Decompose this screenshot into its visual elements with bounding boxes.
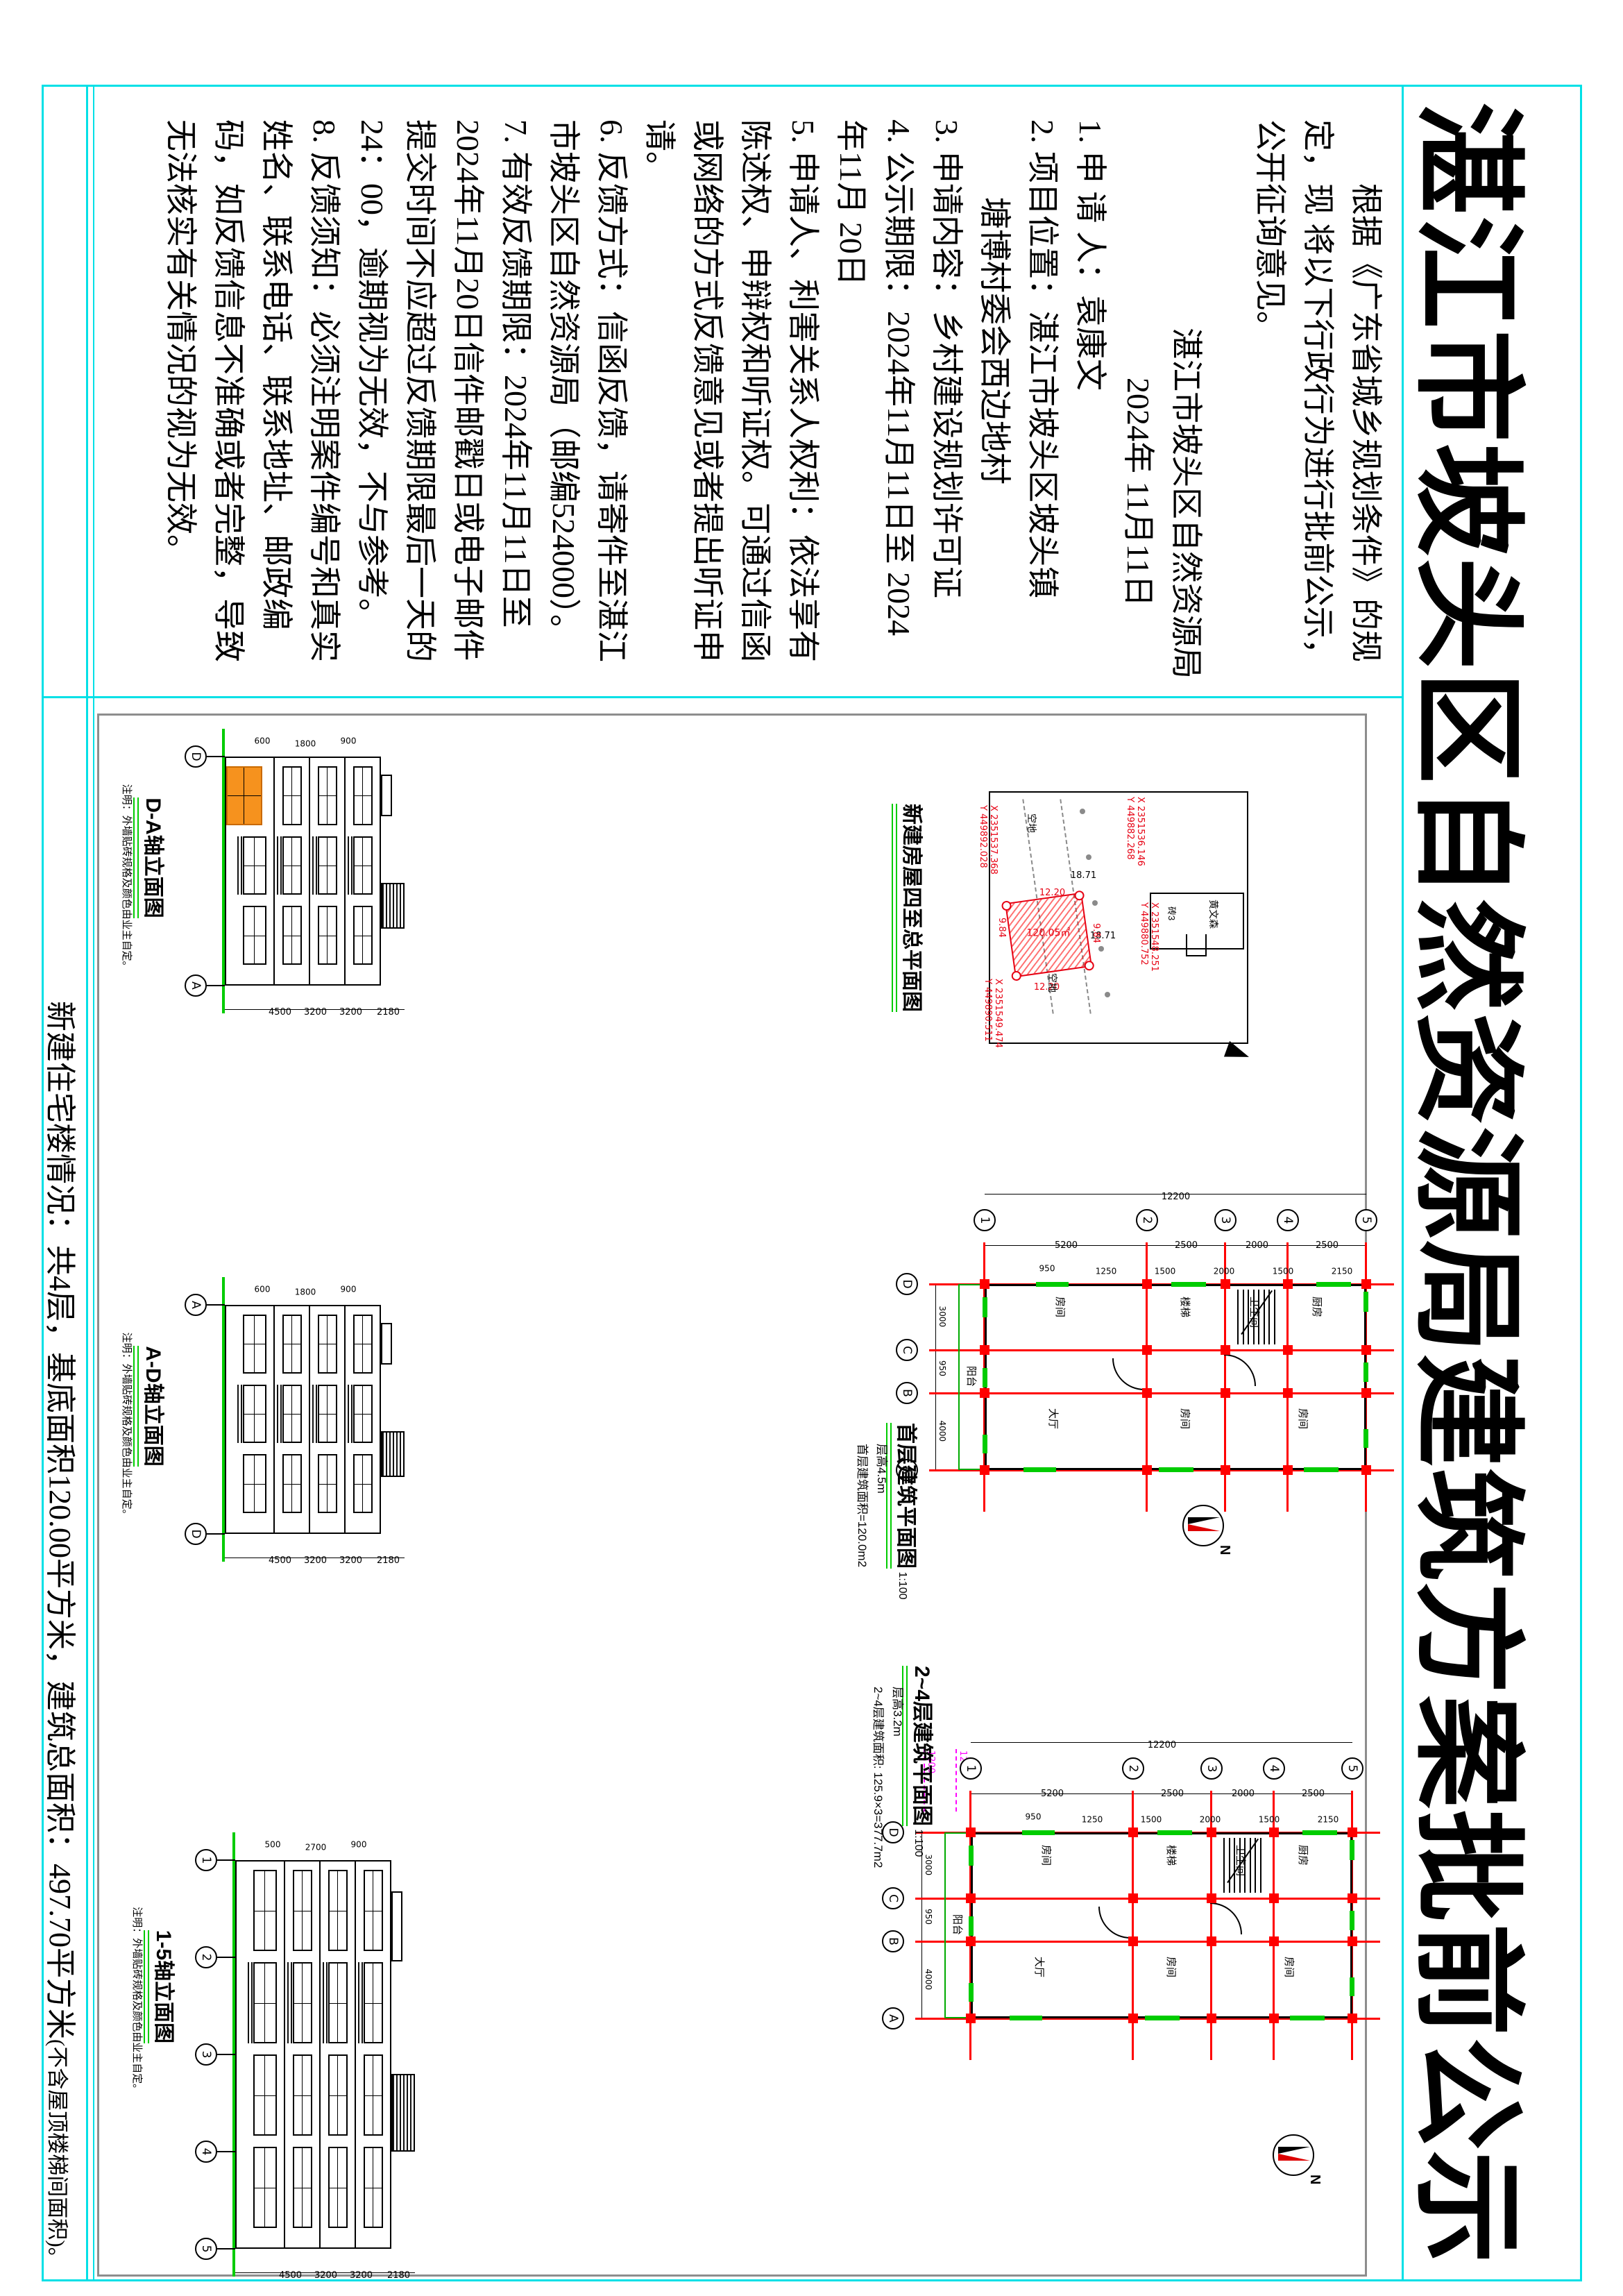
elevation-height-dim: 3200 [304, 1007, 327, 1018]
neighbor-tag: 砖3 [1166, 906, 1179, 920]
elevation-window [293, 1962, 312, 2043]
letter-axis-bubble: C [896, 1339, 918, 1361]
floor-plan-storey-height: 层高3.2m [890, 1687, 908, 1737]
elevation-window [328, 1870, 348, 1951]
total-dim-number: 12200 [1148, 1740, 1176, 1750]
axis-stem [217, 2054, 235, 2055]
railing-band [277, 836, 282, 895]
room-label: 卫生间 [1234, 1845, 1248, 1876]
elevation-window [318, 906, 337, 965]
elevation-axis-bubble: 3 [195, 2043, 217, 2066]
elevation-window [243, 1385, 266, 1444]
notice-line: 7. 有效反馈期限：2024年11月11日至 [492, 119, 540, 702]
survey-dot [1092, 900, 1098, 906]
elevation-note: 注明：外墙贴砖规格及颜色由业主自定。 [120, 1333, 135, 1520]
column-marker [1142, 1279, 1152, 1289]
north-label: N [1307, 2175, 1323, 2184]
sub-dim-number: 1250 [1082, 1814, 1103, 1824]
survey-dot [1105, 992, 1110, 997]
sub-dim-number: 2000 [1214, 1266, 1235, 1276]
railing-band [287, 1962, 293, 2043]
compass-needle-red [1278, 2154, 1310, 2161]
column-marker [966, 2014, 976, 2023]
elevation-window [282, 766, 302, 825]
north-compass-icon [1273, 2134, 1314, 2176]
elevation-axis-bubble: A [185, 974, 207, 997]
wall-green-segment [1363, 1429, 1368, 1448]
balcony-label: 阳台 [965, 1366, 979, 1387]
letter-dim-number: 3000 [924, 1855, 933, 1876]
wall-green-segment [1350, 1977, 1354, 1996]
wall-green-segment [1363, 1292, 1368, 1312]
dim-line [935, 1284, 936, 1470]
railing-band [248, 1962, 253, 2043]
offset-dim-line [955, 1749, 957, 1812]
column-marker [1348, 1893, 1357, 1903]
floor-plan-scale: 1:100 [912, 1826, 924, 1857]
column-marker [1269, 1936, 1279, 1946]
elevation-window [318, 1454, 337, 1513]
railing-band [237, 836, 243, 895]
railing-band [358, 1962, 364, 2043]
coord-y: Y 449892.028 [978, 805, 988, 875]
sub-dim-number: 950 [1039, 1263, 1055, 1273]
north-label: N [1216, 1545, 1232, 1555]
column-marker [1221, 1345, 1230, 1355]
railing-band [312, 1385, 318, 1444]
caption-text-small: (不含屋顶楼梯间面积)。 [45, 2039, 69, 2269]
total-dim-number: 12200 [1162, 1192, 1190, 1202]
room-label: 楼梯 [1164, 1845, 1179, 1866]
room-label: 房间 [1164, 1957, 1179, 1977]
axis-stem [207, 1304, 225, 1306]
plot-dim-bottom: 9.84 [996, 918, 1007, 938]
caption-text: 新建住宅楼情况：共4层，基底面积120.00平方米，建筑总面积：497.70平方… [43, 1001, 77, 2039]
elevation-window [328, 1962, 348, 2043]
elevation-note: 注明：外墙贴砖规格及颜色由业主自定。 [120, 784, 135, 972]
sub-dim-number: 2000 [1200, 1814, 1221, 1824]
vacant-label: 空地 [1025, 813, 1039, 833]
column-marker [1361, 1345, 1371, 1355]
column-marker [1269, 1827, 1279, 1837]
railing-band [323, 1962, 328, 2043]
axis-dim-number: 2500 [1161, 1789, 1184, 1799]
plot-area-label: 120.05㎡ [1027, 926, 1071, 940]
letter-dim-number: 950 [924, 1909, 933, 1925]
elevation-window [282, 1315, 302, 1374]
letter-axis-bubble: C [882, 1887, 904, 1909]
wall-green-segment [1291, 2016, 1325, 2020]
numeric-axis-bubble: 4 [1277, 1209, 1299, 1231]
elevation-window [353, 1454, 373, 1513]
column-marker [1348, 1936, 1357, 1946]
elevation-height-dim: 2180 [377, 1555, 400, 1566]
page-title: 湛江市坡头区自然资源局建筑方案批前公示 [1410, 90, 1559, 2277]
roof-parapet-block [381, 775, 392, 816]
elevation-axis-bubble: 4 [195, 2141, 217, 2163]
elevation-sub-dim: 600 [255, 736, 271, 745]
elevation-height-dim: 3200 [339, 1555, 362, 1566]
elevation-axis-bubble: 2 [195, 1946, 217, 1968]
notice-line: 陈述权、申辩权和听证权。可通过信函 [731, 119, 779, 702]
elevation-window [328, 2054, 348, 2136]
room-label: 房间 [1039, 1845, 1054, 1866]
sub-dim-number: 950 [1026, 1812, 1042, 1821]
wall-green-segment [1036, 1282, 1069, 1287]
column-marker [1221, 1388, 1230, 1398]
axis-stem [217, 1957, 235, 1958]
compass-needle-black [1278, 2147, 1310, 2154]
letter-axis-bubble: D [896, 1273, 918, 1295]
coord-x: X 2351548.251 [1149, 902, 1159, 972]
axis-dim-number: 2500 [1316, 1240, 1339, 1251]
railing-band [348, 1385, 353, 1444]
sub-dim-number: 2150 [1332, 1266, 1353, 1276]
elevation-window [318, 1315, 337, 1374]
elevation-axis-bubble: 5 [195, 2238, 217, 2260]
compass-needle-black [1188, 1517, 1220, 1524]
room-label: 厨房 [1296, 1845, 1311, 1866]
column-marker [1142, 1345, 1152, 1355]
elevation-window [253, 2147, 277, 2228]
room-label: 大厅 [1046, 1408, 1061, 1429]
elevation-window [353, 906, 373, 965]
elevation-window [364, 2147, 383, 2228]
elevation-height-dim: 4500 [269, 1007, 291, 1018]
room-label: 房间 [1053, 1297, 1068, 1317]
plot-corner-coords: X 2351548.251Y 449880.752 [1139, 902, 1159, 972]
wall-green-segment [1022, 1830, 1055, 1835]
column-marker [1142, 1465, 1152, 1475]
axis-dim-number: 2000 [1232, 1789, 1255, 1799]
elevation-title: 1-5轴立面图 [144, 1930, 181, 2043]
wall-green-segment [1305, 1467, 1339, 1472]
column-marker [1207, 1827, 1216, 1837]
roof-parapet-block [391, 1891, 402, 1961]
site-plan-title: 新建房屋四至总平面图 [892, 804, 929, 1012]
neighbor-building-notch [1186, 934, 1207, 956]
roof-stair-bulkhead [381, 1431, 405, 1477]
notice-line: 4. 公示期限：2024年11月11日至 2024 [875, 119, 923, 702]
floor-plan-title-text: 2~4层建筑平面图 [902, 1666, 940, 1826]
wall-green-segment [983, 1368, 987, 1388]
wall-green-segment [969, 1983, 974, 2002]
elevation-axis-bubble: A [185, 1294, 207, 1316]
column-marker [1269, 1893, 1279, 1903]
plot-corner-coords: X 2351549.474Y 449890.511 [983, 979, 1003, 1048]
notice-line: 或网络的方式反馈意见或者提出听证申 [683, 119, 731, 702]
elevation-window [293, 2147, 312, 2228]
notice-line: 公开征询意见。 [1246, 119, 1294, 702]
column-marker [1128, 1936, 1138, 1946]
elevation-window [243, 836, 266, 895]
plot-corner-coords: X 2351536.146Y 449882.268 [1125, 797, 1146, 866]
column-marker [1283, 1345, 1293, 1355]
notice-line: 24：00，逾期视为无效，不与参考。 [348, 119, 396, 702]
elevation-window [364, 2054, 383, 2136]
notice-line: 2024年11月20日信件邮戳日或电子邮件 [444, 119, 492, 702]
column-marker [1283, 1279, 1293, 1289]
roof-parapet-block [381, 1323, 392, 1364]
elevation-sub-dim: 900 [341, 736, 357, 745]
column-marker [1361, 1279, 1371, 1289]
room-label: 房间 [1178, 1408, 1193, 1429]
elevation-height-dim: 4500 [279, 2270, 302, 2281]
sub-dim-number: 1250 [1096, 1266, 1117, 1276]
elevation-axis-bubble: 1 [195, 1849, 217, 1871]
axis-stem [207, 756, 225, 757]
notice-line: 2. 项目位置：湛江市坡头区坡头镇 [1019, 119, 1067, 702]
elevation-axis-bubble: D [185, 745, 207, 768]
wall-green-segment [983, 1297, 987, 1317]
elevation-window [353, 1385, 373, 1444]
column-marker [980, 1279, 989, 1289]
elevation-title-text: D-A轴立面图 [133, 797, 171, 918]
column-marker [1128, 2014, 1138, 2023]
wall-green-segment [1303, 1830, 1338, 1835]
column-marker [1142, 1388, 1152, 1398]
elevation-window [282, 906, 302, 965]
roof-stair-bulkhead [391, 2074, 415, 2152]
notice-line: 2024年 11月11日 [1114, 119, 1162, 702]
elevation-sub-dim: 600 [255, 1284, 271, 1294]
landscape-sheet: 湛江市坡头区自然资源局建筑方案批前公示 根据《广东省城乡规划条件》的规定，现 将… [0, 0, 1623, 2296]
entrance-door-orange [226, 766, 262, 825]
column-marker [1361, 1465, 1371, 1475]
axis-stem [217, 2248, 235, 2249]
notice-block: 根据《广东省城乡规划条件》的规定，现 将以下行政行为进行批前公示，公开征询意见。… [157, 119, 1390, 702]
compass-needle-red [1188, 1524, 1220, 1531]
column-marker [1269, 2014, 1279, 2023]
elevation-sub-dim: 900 [351, 1839, 367, 1849]
elevation-sub-dim: 2700 [305, 1842, 327, 1852]
plan-outer-wall [971, 1832, 1352, 2018]
letter-axis-bubble: B [882, 1930, 904, 1952]
elevation-window [282, 836, 302, 895]
floor-plan-title-text: 首层建筑平面图 [886, 1423, 924, 1569]
notice-line: 姓名、联系电话、联系地址、邮政编 [253, 119, 300, 702]
elevation-axis-bubble: D [185, 1523, 207, 1545]
axis-dim-number: 2500 [1175, 1240, 1198, 1251]
letter-dim-number: 4000 [937, 1421, 947, 1442]
wall-green-segment [1350, 1840, 1354, 1860]
neighbor-name: 黄文森 [1207, 900, 1221, 929]
survey-dot [1080, 809, 1085, 814]
elevation-window [253, 1962, 277, 2043]
axis-dim-number: 2000 [1246, 1240, 1268, 1251]
elevation-window [243, 1315, 266, 1374]
survey-dot [1098, 946, 1104, 952]
plot-dim-left: 12.20 [1039, 888, 1065, 898]
elevation-window [243, 1454, 266, 1513]
column-marker [1207, 2014, 1216, 2023]
column-marker [980, 1345, 989, 1355]
elevation-height-dim: 2180 [377, 1007, 400, 1018]
notice-line: 定，现 将以下行政行为进行批前公示， [1294, 119, 1342, 702]
elevation-height-dim: 3200 [314, 2270, 337, 2281]
column-marker [1221, 1279, 1230, 1289]
column-marker [1128, 1893, 1138, 1903]
wall-green-segment [1146, 2016, 1180, 2020]
notice-line: 6. 反馈方式：信函反馈，请寄件至湛江 [588, 119, 636, 702]
axis-dim-number: 5200 [1041, 1789, 1064, 1799]
room-label: 房间 [1282, 1957, 1297, 1977]
balcony-label: 阳台 [951, 1914, 965, 1935]
numeric-axis-bubble: 1 [960, 1757, 982, 1780]
wall-green-segment [1158, 1830, 1193, 1835]
railing-band [277, 1385, 282, 1444]
elevation-window [318, 766, 337, 825]
notice-line: 提交时间不应超过反馈期限最后一天的 [396, 119, 444, 702]
elevation-window [353, 1315, 373, 1374]
elevation-title: A-D轴立面图 [133, 1346, 171, 1466]
room-label: 房间 [1296, 1408, 1311, 1429]
wall-green-segment [1023, 1467, 1056, 1472]
elevation-window [253, 1870, 277, 1951]
dim-line [921, 1832, 922, 2018]
road-dim: 18.71 [1071, 870, 1096, 881]
elevation-window [293, 2054, 312, 2136]
wall-green-segment [1350, 1911, 1354, 1931]
wall-green-segment [1363, 1362, 1368, 1383]
notice-line: 年11月 20日 [827, 119, 875, 702]
notice-line: 塘博村委会西边地村 [971, 119, 1019, 702]
elevation-window [353, 766, 373, 825]
caption-divider-line-a [93, 85, 94, 2281]
caption-strip: 新建住宅楼情况：共4层，基底面积120.00平方米，建筑总面积：497.70平方… [41, 1001, 85, 2269]
column-marker [1207, 1893, 1216, 1903]
sub-dim-number: 1500 [1155, 1266, 1176, 1276]
column-marker [1207, 1936, 1216, 1946]
survey-dot [1086, 854, 1091, 860]
coord-x: X 2351537.368 [988, 805, 999, 875]
room-label: 卫生间 [1248, 1297, 1262, 1328]
room-label: 厨房 [1310, 1297, 1325, 1317]
floor-plan-title: 首层建筑平面图 1:100 [886, 1423, 924, 1599]
notice-line: 根据《广东省城乡规划条件》的规 [1342, 119, 1390, 702]
column-marker [1221, 1465, 1230, 1475]
floor-plan-storey-height: 层高4.5m [874, 1444, 892, 1494]
column-marker [1128, 1827, 1138, 1837]
elevation-height-dim: 3200 [304, 1555, 327, 1566]
elevation-title: D-A轴立面图 [133, 797, 171, 918]
wall-green-segment [1159, 1467, 1194, 1472]
axis-dim-number: 5200 [1055, 1240, 1078, 1251]
elevation-sub-dim: 900 [341, 1284, 357, 1294]
numeric-axis-bubble: 2 [1122, 1757, 1144, 1780]
sub-dim-number: 1500 [1141, 1814, 1162, 1824]
roof-stair-bulkhead [381, 883, 405, 929]
numeric-axis-bubble: 4 [1263, 1757, 1285, 1780]
column-marker [966, 1827, 976, 1837]
wall-green-segment [1317, 1282, 1352, 1287]
floor-plan-area: 首层建筑面积=120.0m2 [855, 1444, 872, 1567]
column-marker [1348, 1827, 1357, 1837]
coord-y: Y 449890.511 [983, 979, 993, 1048]
elevation-window [353, 836, 373, 895]
column-marker [980, 1465, 989, 1475]
wall-green-segment [1010, 2016, 1042, 2020]
elevation-window [318, 1385, 337, 1444]
numeric-axis-bubble: 5 [1355, 1209, 1377, 1231]
notice-line: 1. 申 请 人：袁康文 [1067, 119, 1114, 702]
elevation-sub-dim: 1800 [295, 1287, 316, 1297]
sub-dim-number: 1500 [1273, 1266, 1294, 1276]
numeric-axis-bubble: 1 [974, 1209, 996, 1231]
room-label: 大厅 [1033, 1957, 1047, 1977]
elevation-window [243, 906, 266, 965]
coord-x: X 2351549.474 [993, 979, 1003, 1048]
notice-line: 8. 反馈须知：必须注明案件编号和真实 [300, 119, 348, 702]
elevation-window [328, 2147, 348, 2228]
plot-corner-coords: X 2351537.368Y 449892.028 [978, 805, 999, 875]
railing-band [312, 836, 318, 895]
wall-green-segment [969, 1916, 974, 1936]
sub-dim-number: 2150 [1318, 1814, 1339, 1824]
column-marker [1348, 2014, 1357, 2023]
caption-divider-line-b [86, 85, 88, 2281]
scanned-notice-page: 湛江市坡头区自然资源局建筑方案批前公示 根据《广东省城乡规划条件》的规定，现 将… [0, 0, 1623, 2296]
wall-green-segment [1172, 1282, 1207, 1287]
axis-stem [217, 2151, 235, 2152]
wall-green-segment [983, 1435, 987, 1453]
axis-stem [217, 1859, 235, 1861]
elevation-height-dim: 4500 [269, 1555, 291, 1566]
elevation-window [364, 1962, 383, 2043]
floor-plan-title: 2~4层建筑平面图 1:100 [902, 1666, 940, 1857]
coord-x: X 2351536.146 [1135, 797, 1146, 866]
letter-dim-number: 950 [937, 1360, 947, 1376]
elevation-sub-dim: 1800 [295, 738, 316, 748]
notice-line: 请。 [636, 119, 683, 702]
letter-dim-number: 4000 [924, 1969, 933, 1991]
elevation-title-text: A-D轴立面图 [133, 1346, 171, 1466]
notice-line: 湛江市坡头区自然资源局 [1162, 119, 1210, 702]
numeric-axis-bubble: 3 [1214, 1209, 1237, 1231]
letter-axis-bubble: A [882, 2007, 904, 2029]
column-marker [1283, 1388, 1293, 1398]
column-marker [966, 1936, 976, 1946]
numeric-axis-bubble: 5 [1341, 1757, 1363, 1780]
elevation-note: 注明：外墙贴砖规格及颜色由业主自定。 [130, 1907, 145, 2094]
elevation-window [364, 1870, 383, 1951]
column-marker [980, 1388, 989, 1398]
letter-axis-bubble: B [896, 1382, 918, 1404]
axis-stem [207, 985, 225, 986]
elevation-window [282, 1454, 302, 1513]
notice-line: 市坡头区自然资源局（邮编524000）。 [540, 119, 588, 702]
coord-y: Y 449880.752 [1139, 902, 1149, 972]
vacant-label: 空地 [1046, 973, 1060, 993]
elevation-sub-dim: 500 [265, 1839, 281, 1849]
axis-stem [207, 1533, 225, 1535]
notice-line: 5. 申请人、利害关系人权利：依法享有 [779, 119, 827, 702]
room-label: 楼梯 [1178, 1297, 1193, 1317]
north-compass-icon [1182, 1505, 1224, 1546]
elevation-window [318, 836, 337, 895]
notice-line: 码，如反馈信息不准确或者完整，导致 [205, 119, 253, 702]
axis-dim-number: 2500 [1302, 1789, 1325, 1799]
letter-dim-number: 3000 [937, 1306, 947, 1328]
column-marker [1283, 1465, 1293, 1475]
floor-plan-area: 2~4层建筑面积: 125.9×3=377.7m2 [871, 1687, 888, 1868]
numeric-axis-bubble: 3 [1200, 1757, 1223, 1780]
elevation-height-dim: 2180 [387, 2270, 410, 2281]
column-marker [966, 1893, 976, 1903]
railing-band [237, 1385, 243, 1444]
floor-plan-scale: 1:100 [897, 1569, 908, 1599]
notice-line: 无法核实有关情况的视为无效。 [157, 119, 205, 702]
